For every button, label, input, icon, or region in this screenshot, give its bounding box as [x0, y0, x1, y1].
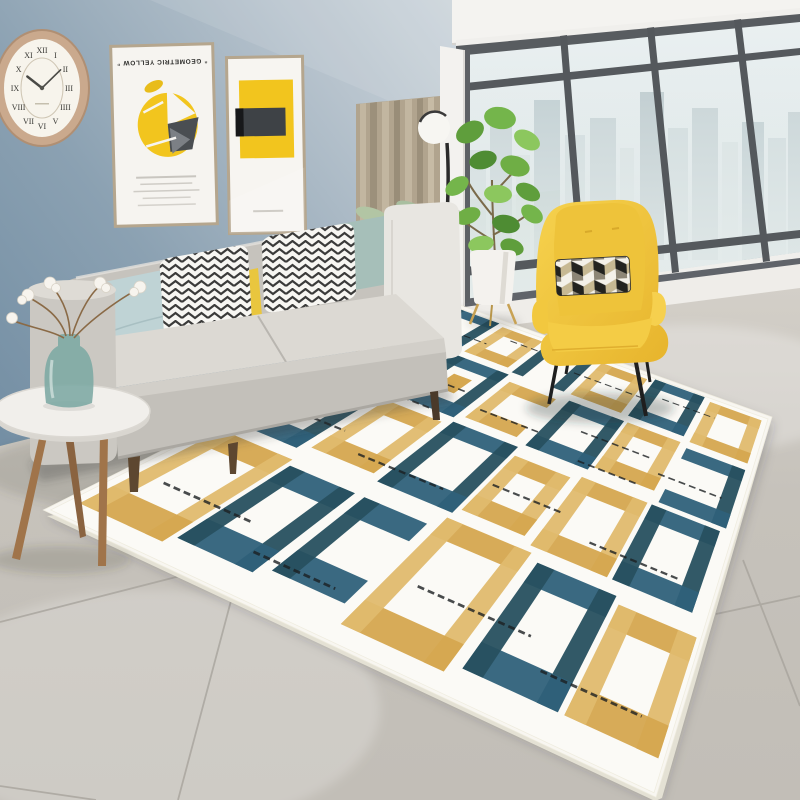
armchair	[526, 200, 674, 423]
sofa-leg	[228, 442, 238, 474]
cotton-puff	[130, 288, 139, 297]
cube-pillow	[555, 256, 631, 296]
cotton-puff	[18, 296, 27, 305]
fig-leaf	[513, 179, 543, 205]
sofa-leg	[128, 456, 140, 492]
sofa	[28, 202, 462, 492]
fig-leaf	[483, 184, 512, 204]
fig-leaf	[510, 125, 543, 155]
fig-leaf	[467, 148, 499, 173]
living-room-product-photo: XII I II III IIII V VI VII VIII IX X XI …	[0, 0, 800, 800]
cotton-puff	[52, 284, 61, 293]
fig-leaf	[482, 104, 517, 131]
cube-pillow-face	[555, 256, 631, 296]
furniture-layer	[0, 0, 800, 800]
fig-pot	[470, 250, 516, 305]
cotton-puff	[102, 284, 111, 293]
fig-shadow	[466, 317, 520, 327]
fig-leaf	[518, 201, 547, 228]
pillow-zigzag-right-pattern	[262, 224, 356, 313]
chair-shadow	[526, 393, 674, 423]
fig-leaf	[490, 212, 521, 235]
fig-leaf	[498, 152, 533, 180]
fig-leaf	[452, 116, 488, 148]
cotton-puff	[7, 313, 18, 324]
